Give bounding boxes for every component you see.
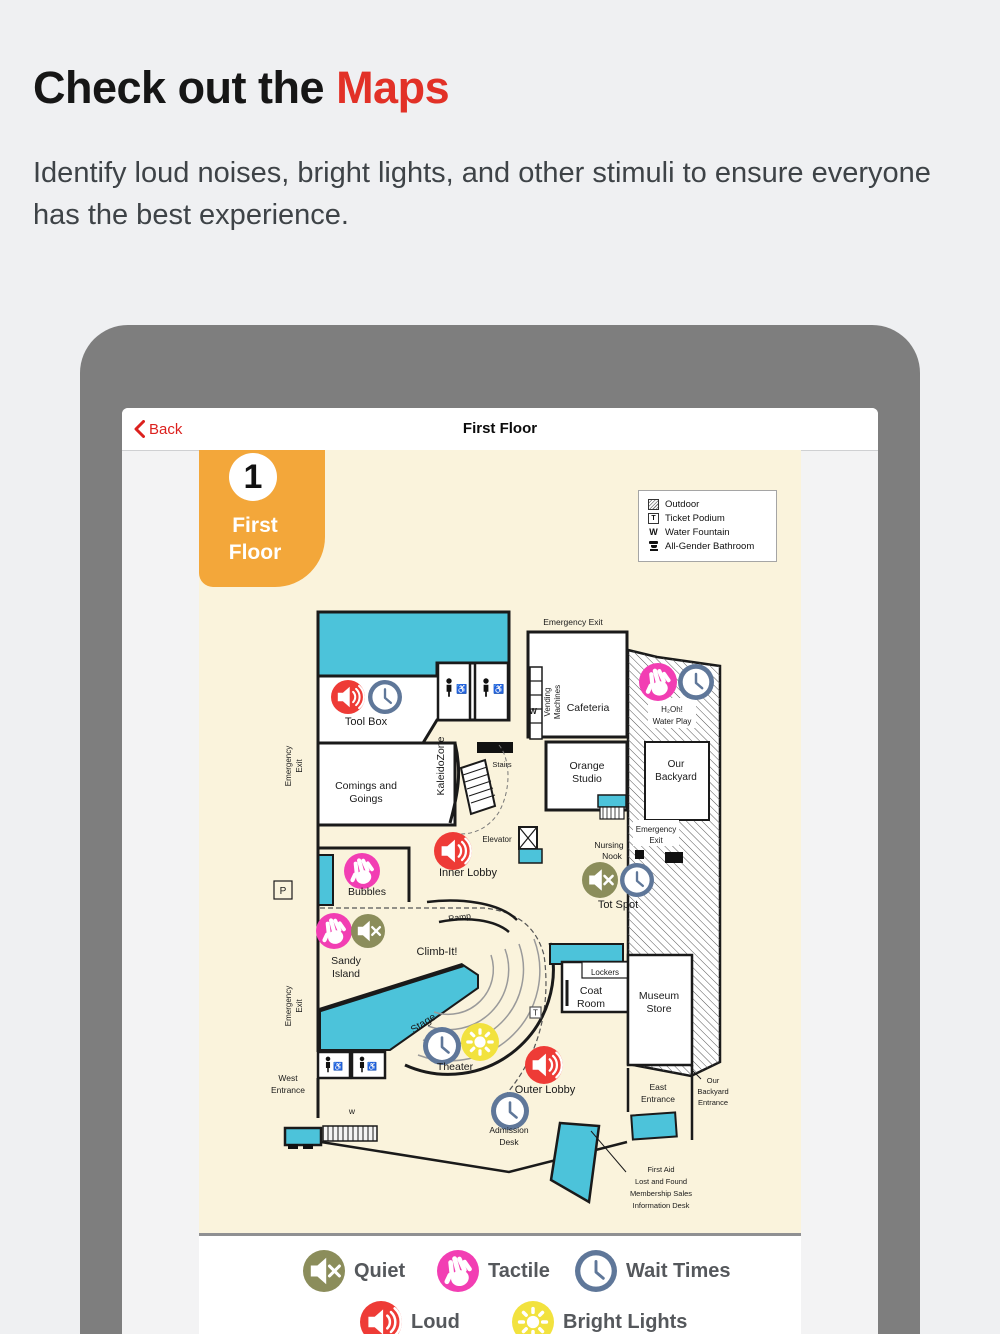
key-row-outdoor: Outdoor bbox=[648, 497, 776, 511]
ramp-curves bbox=[427, 901, 517, 932]
label-our-backyard-1: Our bbox=[668, 759, 685, 770]
label-emergency-backyard-1: Emergency bbox=[636, 825, 676, 834]
label-stairs: Stairs bbox=[492, 760, 511, 769]
label-comings-2: Goings bbox=[349, 793, 382, 805]
label-admission-1: Admission bbox=[489, 1125, 528, 1135]
label-emergency-left-top-1: Emergency bbox=[284, 746, 293, 786]
label-parking: P bbox=[280, 886, 287, 897]
label-museum-2: Store bbox=[646, 1003, 671, 1015]
quiet-icon bbox=[351, 914, 385, 948]
label-emergency-left-bottom-2: Exit bbox=[295, 999, 304, 1013]
map-key: Outdoor T Ticket Podium W Water Fountain… bbox=[638, 490, 777, 562]
stairs-west bbox=[323, 1126, 377, 1141]
floor-map: ♿ ♿ ♿ ♿ bbox=[199, 450, 801, 1233]
key-label: All-Gender Bathroom bbox=[665, 541, 754, 552]
label-backyard-entrance-3: Entrance bbox=[698, 1098, 728, 1107]
key-row-ticket: T Ticket Podium bbox=[648, 511, 776, 525]
label-kaleidozone: KaleidoZone bbox=[435, 736, 447, 795]
page-title: Check out the Maps bbox=[33, 62, 449, 114]
floor-badge-line2: Floor bbox=[199, 541, 311, 565]
sensory-legend: Quiet Tactile Wait Times Loud Bright Lig… bbox=[199, 1236, 801, 1334]
label-sandy-1: Sandy bbox=[331, 955, 362, 967]
label-climb: Climb-It! bbox=[417, 946, 458, 958]
label-first-aid-4: Information Desk bbox=[633, 1201, 690, 1210]
tactile-icon bbox=[436, 1249, 480, 1293]
label-outer-lobby: Outer Lobby bbox=[515, 1084, 576, 1096]
all-gender-bathroom-icon bbox=[649, 541, 658, 551]
label-ticket-podium: T bbox=[533, 1009, 538, 1018]
wait-times-icon bbox=[368, 680, 402, 714]
quiet-icon bbox=[582, 862, 618, 898]
legend-item-quiet: Quiet bbox=[302, 1249, 405, 1293]
label-vending-2: Machines bbox=[553, 685, 562, 719]
legend-item-tactile: Tactile bbox=[436, 1249, 550, 1293]
wait-times-icon bbox=[423, 1027, 461, 1065]
label-west-entrance-1: West bbox=[278, 1073, 298, 1083]
page-title-black: Check out the bbox=[33, 62, 324, 113]
key-row-water: W Water Fountain bbox=[648, 525, 776, 539]
legend-label: Bright Lights bbox=[563, 1311, 687, 1334]
tablet-frame: Back First Floor bbox=[80, 325, 920, 1334]
label-cafeteria: Cafeteria bbox=[567, 702, 610, 714]
label-emergency-backyard-2: Exit bbox=[649, 836, 663, 845]
label-tot-spot: Tot Spot bbox=[598, 899, 638, 911]
legend-item-wait-times: Wait Times bbox=[574, 1249, 730, 1293]
legend-label: Loud bbox=[411, 1311, 460, 1334]
label-h2oh-2: Water Play bbox=[653, 717, 692, 726]
label-coat-2: Room bbox=[577, 998, 605, 1010]
tactile-icon bbox=[344, 853, 380, 889]
label-west-entrance-2: Entrance bbox=[271, 1085, 305, 1095]
stairs-upper bbox=[461, 742, 513, 834]
page-title-accent: Maps bbox=[336, 62, 449, 113]
nav-title: First Floor bbox=[122, 408, 878, 450]
elevator bbox=[519, 827, 542, 863]
app-screen: Back First Floor bbox=[122, 408, 878, 1334]
label-coat-1: Coat bbox=[580, 985, 602, 997]
label-vending-1: Vending bbox=[543, 688, 552, 717]
nav-bar: Back First Floor bbox=[122, 408, 878, 451]
loud-icon bbox=[331, 680, 365, 714]
svg-text:♿: ♿ bbox=[367, 1061, 377, 1071]
water-fountain-symbol: W bbox=[649, 527, 658, 537]
key-label: Water Fountain bbox=[665, 527, 730, 538]
floor-badge: 1 First Floor bbox=[199, 450, 325, 587]
label-backyard-entrance-1: Our bbox=[707, 1076, 720, 1085]
label-inner-lobby: Inner Lobby bbox=[439, 867, 498, 879]
label-nursing-nook-2: Nook bbox=[602, 851, 623, 861]
key-label: Outdoor bbox=[665, 499, 699, 510]
label-lockers: Lockers bbox=[591, 968, 619, 977]
label-bubbles: Bubbles bbox=[348, 886, 386, 898]
page-subtitle: Identify loud noises, bright lights, and… bbox=[33, 152, 963, 236]
label-first-aid-3: Membership Sales bbox=[630, 1189, 692, 1198]
label-backyard-entrance-2: Backyard bbox=[697, 1087, 728, 1096]
bright-lights-icon bbox=[511, 1300, 555, 1334]
tactile-icon bbox=[639, 663, 677, 701]
label-first-aid-1: First Aid bbox=[647, 1165, 674, 1174]
legend-label: Quiet bbox=[354, 1260, 405, 1283]
key-row-bathroom: All-Gender Bathroom bbox=[648, 539, 776, 553]
legend-item-loud: Loud bbox=[359, 1300, 460, 1334]
tactile-icon bbox=[316, 913, 352, 949]
wait-times-icon bbox=[574, 1249, 618, 1293]
label-tool-box: Tool Box bbox=[345, 716, 388, 728]
svg-text:♿: ♿ bbox=[456, 683, 467, 694]
label-w-cafe: W bbox=[529, 707, 537, 716]
legend-label: Tactile bbox=[488, 1260, 550, 1283]
label-h2oh-1: H₂Oh! bbox=[661, 705, 683, 714]
floor-number: 1 bbox=[229, 453, 277, 501]
bright-lights-icon bbox=[461, 1023, 499, 1061]
label-museum-1: Museum bbox=[639, 990, 680, 1002]
label-elevator: Elevator bbox=[482, 835, 512, 844]
legend-label: Wait Times bbox=[626, 1260, 730, 1283]
ticket-podium-symbol: T bbox=[648, 513, 659, 524]
floor-badge-line1: First bbox=[199, 514, 311, 538]
wait-times-icon bbox=[678, 664, 714, 700]
label-nursing-nook-1: Nursing bbox=[594, 840, 624, 850]
label-admission-2: Desk bbox=[499, 1137, 519, 1147]
label-our-backyard-2: Backyard bbox=[655, 772, 697, 783]
label-ramp: Ramp bbox=[448, 910, 472, 923]
loud-icon bbox=[359, 1300, 403, 1334]
label-theater: Theater bbox=[437, 1061, 474, 1073]
label-emergency-exit-top: Emergency Exit bbox=[543, 617, 603, 627]
label-orange-studio-2: Studio bbox=[572, 773, 602, 785]
label-orange-studio-1: Orange bbox=[569, 760, 604, 772]
wait-times-icon bbox=[620, 863, 654, 897]
label-first-aid-2: Lost and Found bbox=[635, 1177, 687, 1186]
map-column: ♿ ♿ ♿ ♿ bbox=[199, 450, 801, 1334]
label-east-entrance-1: East bbox=[649, 1082, 667, 1092]
quiet-icon bbox=[302, 1249, 346, 1293]
label-emergency-left-top-2: Exit bbox=[295, 759, 304, 773]
label-comings-1: Comings and bbox=[335, 780, 397, 792]
key-label: Ticket Podium bbox=[665, 513, 725, 524]
legend-item-bright-lights: Bright Lights bbox=[511, 1300, 687, 1334]
label-emergency-left-bottom-1: Emergency bbox=[284, 986, 293, 1026]
loud-icon bbox=[525, 1046, 563, 1084]
label-east-entrance-2: Entrance bbox=[641, 1094, 675, 1104]
label-w-west: w bbox=[348, 1106, 356, 1116]
first-aid-desk bbox=[551, 1123, 599, 1202]
vending-machines bbox=[530, 667, 542, 739]
label-sandy-2: Island bbox=[332, 968, 360, 980]
svg-text:♿: ♿ bbox=[493, 683, 504, 694]
cafeteria-room bbox=[528, 632, 627, 737]
svg-text:♿: ♿ bbox=[333, 1061, 343, 1071]
loud-icon bbox=[434, 832, 472, 870]
outdoor-hatch-swatch bbox=[648, 499, 659, 510]
